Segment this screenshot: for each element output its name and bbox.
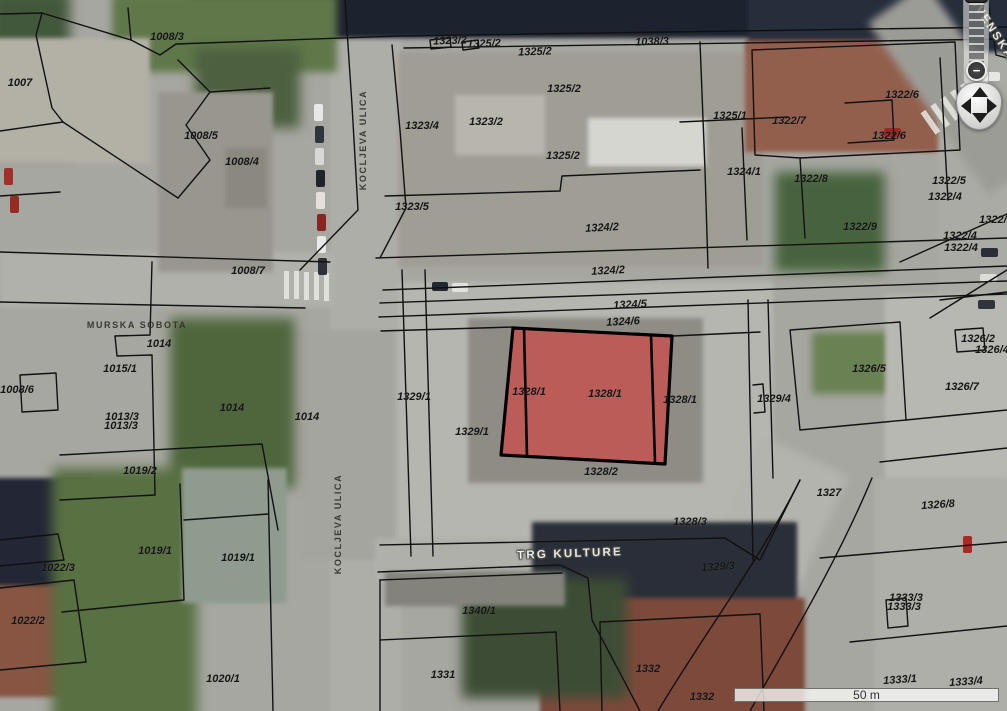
cadastre-layer (0, 0, 1007, 711)
zoom-slider-knob[interactable] (965, 0, 988, 3)
scale-bar: 50 m (734, 688, 999, 702)
pan-right-arrow-icon[interactable] (987, 98, 997, 114)
zoom-out-button[interactable]: − (966, 60, 987, 81)
pan-left-arrow-icon[interactable] (961, 98, 971, 114)
pan-down-arrow-icon[interactable] (972, 113, 988, 123)
pan-up-arrow-icon[interactable] (972, 87, 988, 97)
parcel-boundaries (0, 0, 1007, 711)
scale-bar-text: 50 m (853, 688, 880, 702)
map-canvas[interactable]: 1008/310071008/51008/41008/710141015/110… (0, 0, 1007, 711)
highlighted-parcel-group (501, 328, 672, 464)
zoom-slider-ticks (969, 3, 984, 65)
zoom-control: − (963, 0, 989, 86)
